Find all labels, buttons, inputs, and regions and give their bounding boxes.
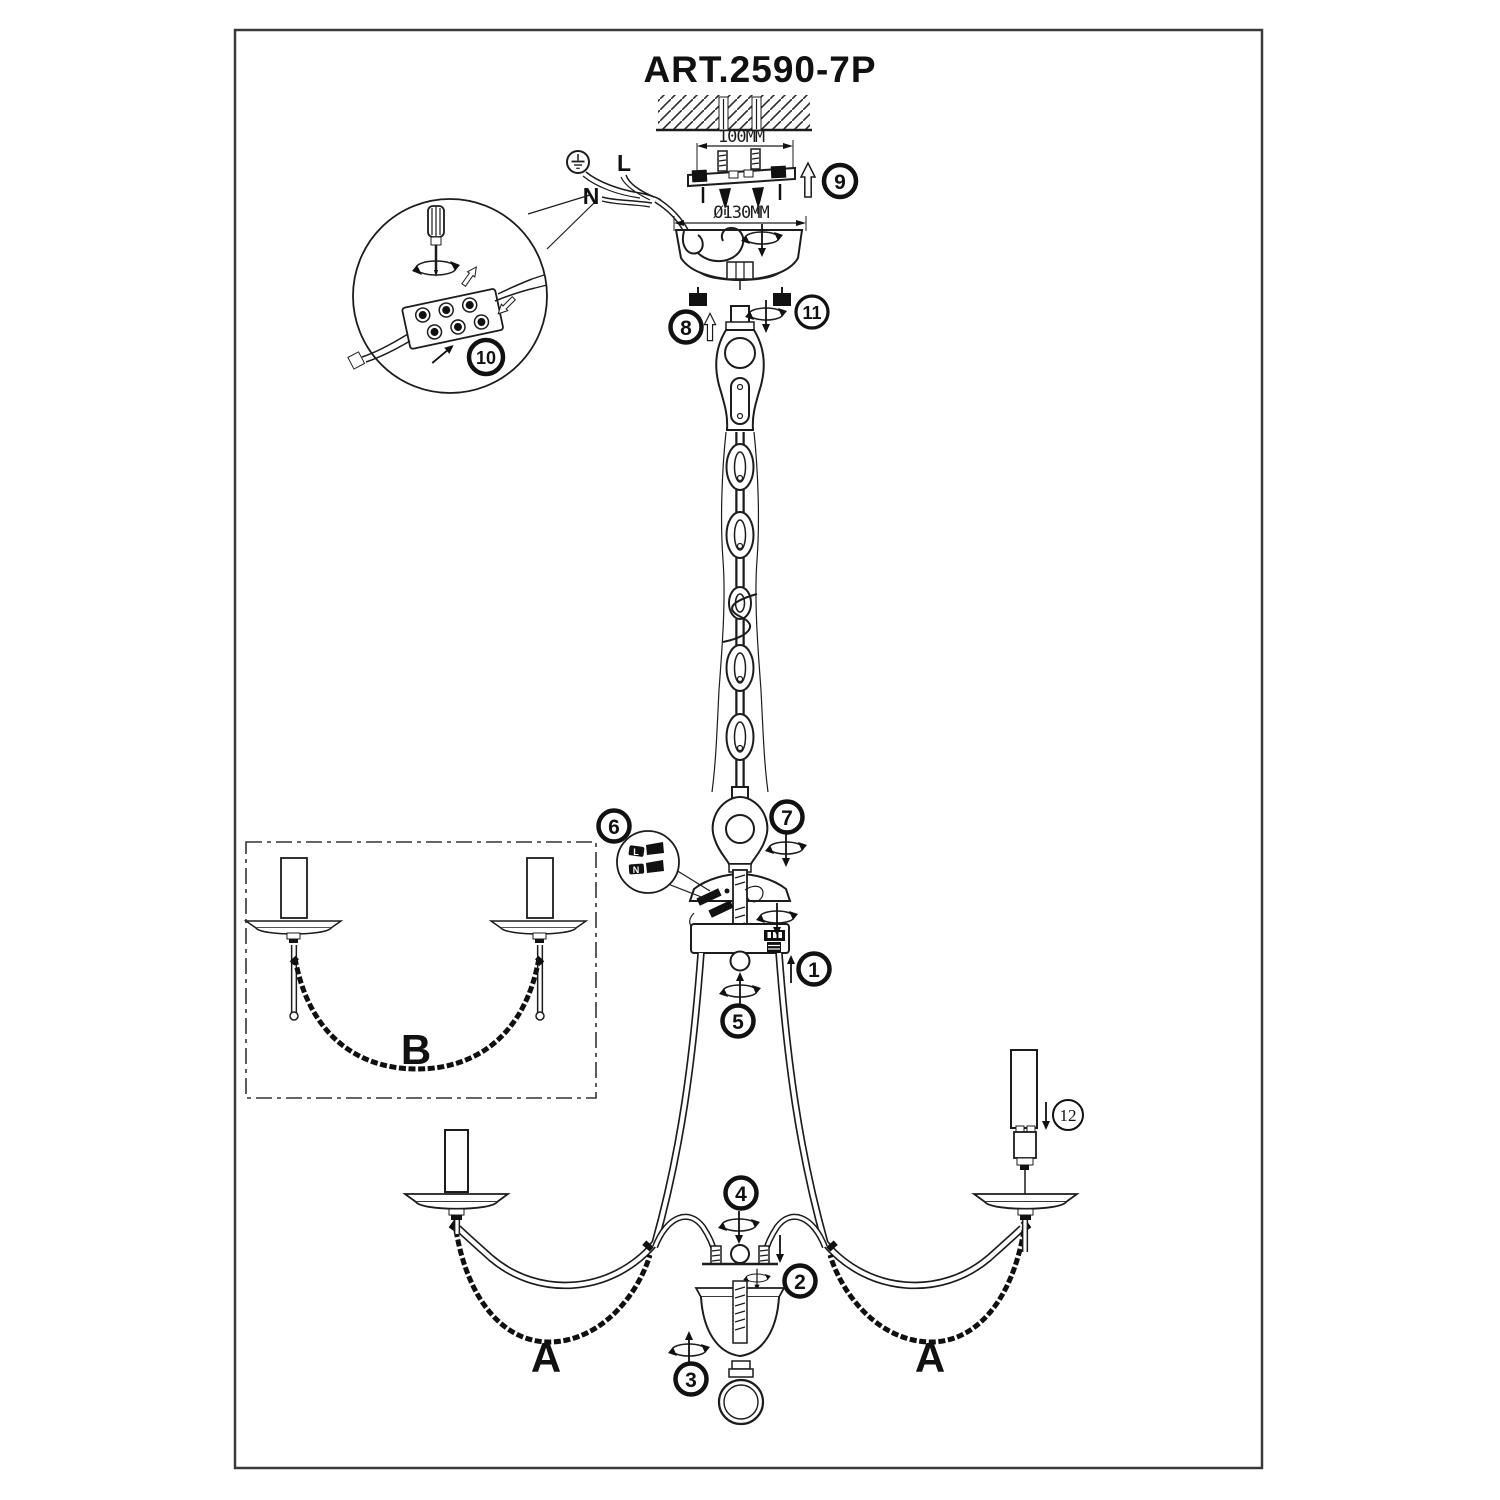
instruction-sheet: ART.2590-7P 100MM xyxy=(0,0,1500,1500)
dimension-130mm: Ø130MM xyxy=(674,203,806,231)
bottom-finial-ring xyxy=(719,1361,763,1424)
svg-text:6: 6 xyxy=(608,816,620,839)
up-arrow-icon xyxy=(704,313,715,340)
rotate-arrow-icon xyxy=(668,1331,710,1364)
svg-text:9: 9 xyxy=(834,171,846,194)
callout-7: 7 xyxy=(772,802,803,833)
down-arrow-icon xyxy=(776,1235,784,1263)
canopy xyxy=(676,228,802,290)
rotate-arrow-icon xyxy=(719,972,761,1005)
dimension-100mm: 100MM xyxy=(697,127,793,171)
arm-right xyxy=(765,953,1022,1285)
bottom-cup xyxy=(696,1281,784,1356)
svg-text:3: 3 xyxy=(685,1369,697,1392)
rotate-arrow-icon xyxy=(765,834,807,867)
arm-left xyxy=(458,953,715,1285)
svg-text:4: 4 xyxy=(735,1183,747,1206)
svg-text:5: 5 xyxy=(732,1011,744,1034)
inset-10-leader xyxy=(528,195,590,214)
candle-left xyxy=(405,1130,508,1234)
ground-icon xyxy=(567,151,589,173)
callout-11: 11 xyxy=(796,296,828,328)
mount-width-label: 100MM xyxy=(718,127,765,147)
callout-2: 2 xyxy=(785,1266,816,1297)
callout-10: 10 xyxy=(469,340,503,374)
inset-connector-detail: L N xyxy=(617,831,679,893)
inset-10-leader xyxy=(547,203,594,249)
inset-arm-label: B xyxy=(401,1026,431,1073)
svg-text:12: 12 xyxy=(1060,1106,1077,1125)
diagram-canvas: ART.2590-7P 100MM xyxy=(0,0,1500,1500)
ceiling-hatch xyxy=(656,95,812,130)
inset-neutral-label: N xyxy=(633,865,640,875)
chain-bottom-loop xyxy=(713,787,768,872)
callout-1: 1 xyxy=(799,954,830,985)
live-wire-label: L xyxy=(617,150,631,176)
chain xyxy=(712,432,768,793)
callout-12: 12 xyxy=(1053,1100,1083,1130)
svg-text:2: 2 xyxy=(794,1271,806,1294)
callout-8: 8 xyxy=(671,312,702,343)
rotate-arrow-icon xyxy=(718,1211,760,1244)
swag-chain-left xyxy=(449,1219,654,1342)
inset-live-label: L xyxy=(633,847,639,857)
svg-text:7: 7 xyxy=(781,807,793,830)
page-title: ART.2590-7P xyxy=(643,49,876,90)
down-arrow-icon xyxy=(1042,1102,1050,1130)
inset-terminal-block xyxy=(348,199,547,393)
callout-4: 4 xyxy=(726,1178,757,1209)
arm-label-right: A xyxy=(915,1334,945,1381)
svg-text:1: 1 xyxy=(808,959,820,982)
inset-box-b: B xyxy=(246,842,596,1098)
swag-chain-right xyxy=(826,1219,1031,1342)
svg-text:8: 8 xyxy=(680,317,692,340)
svg-text:10: 10 xyxy=(476,348,496,368)
candle-right xyxy=(974,1050,1077,1252)
canopy-diameter-label: Ø130MM xyxy=(713,203,769,223)
callout-6: 6 xyxy=(599,811,630,842)
svg-text:11: 11 xyxy=(802,303,821,323)
bottom-crossbar xyxy=(702,1245,778,1264)
callout-5: 5 xyxy=(723,1006,754,1037)
callout-9: 9 xyxy=(824,165,856,197)
hub-assembly xyxy=(690,870,790,971)
inset-6-leader xyxy=(676,870,710,891)
up-arrow-icon xyxy=(787,955,795,983)
arm-label-left: A xyxy=(531,1334,561,1381)
up-arrow-icon xyxy=(801,163,815,197)
callout-3: 3 xyxy=(676,1364,707,1395)
hanging-loop xyxy=(716,306,764,430)
